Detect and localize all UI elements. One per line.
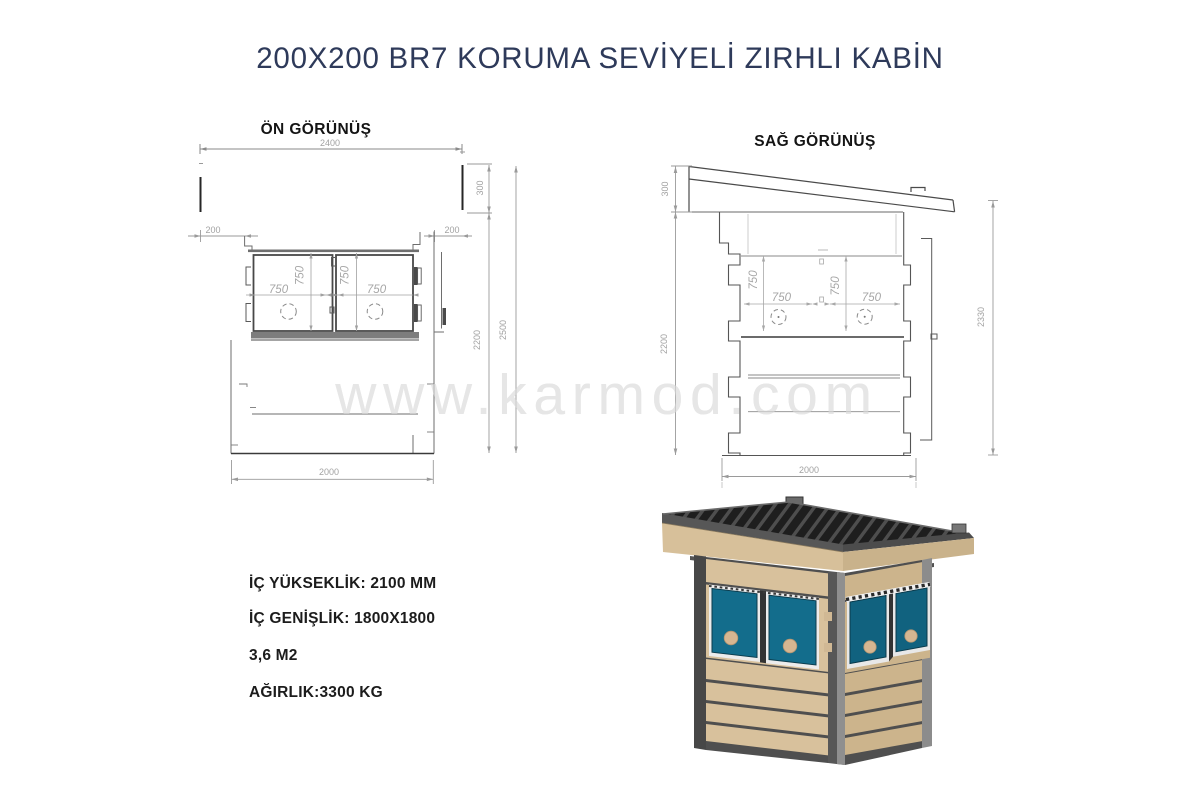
svg-text:2330: 2330 — [976, 307, 986, 327]
svg-text:200: 200 — [444, 225, 459, 235]
svg-text:2000: 2000 — [319, 467, 339, 477]
svg-text:2200: 2200 — [472, 330, 482, 350]
svg-text:750: 750 — [340, 265, 352, 285]
svg-text:750: 750 — [830, 276, 842, 296]
svg-text:750: 750 — [295, 265, 307, 285]
svg-text:2000: 2000 — [799, 465, 819, 475]
svg-text:750: 750 — [772, 292, 792, 304]
svg-text:200: 200 — [205, 225, 220, 235]
svg-text:750: 750 — [367, 284, 387, 296]
svg-text:SAĞ GÖRÜNÜŞ: SAĞ GÖRÜNÜŞ — [754, 132, 876, 150]
svg-text:300: 300 — [475, 180, 485, 195]
svg-text:750: 750 — [862, 292, 882, 304]
svg-text:2200: 2200 — [659, 334, 669, 354]
svg-text:ÖN GÖRÜNÜŞ: ÖN GÖRÜNÜŞ — [261, 121, 372, 138]
svg-text:2400: 2400 — [320, 138, 340, 148]
svg-text:750: 750 — [748, 270, 760, 290]
svg-text:www.karmod.com: www.karmod.com — [334, 363, 879, 427]
svg-text:2500: 2500 — [498, 320, 508, 340]
svg-text:300: 300 — [660, 181, 670, 196]
svg-text:750: 750 — [269, 284, 289, 296]
